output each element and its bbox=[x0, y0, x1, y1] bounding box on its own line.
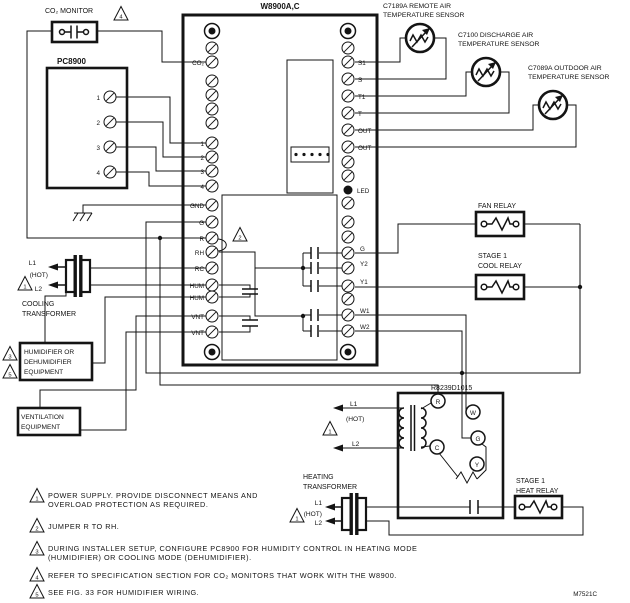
arrow-left-icon bbox=[333, 405, 343, 412]
arrow-left-icon bbox=[48, 264, 58, 271]
sensor-outdoor-label-1: C7089A OUTDOOR AIR bbox=[528, 65, 602, 72]
warning-number: 1 bbox=[328, 430, 331, 436]
pc8900-outline bbox=[47, 68, 127, 188]
note-4: 4 REFER TO SPECIFICATION SECTION FOR CO₂… bbox=[30, 568, 397, 582]
led-label: LED bbox=[357, 188, 370, 195]
warning-number: 3 bbox=[35, 550, 38, 556]
terminal-label-t: T bbox=[358, 111, 362, 118]
pc8900-title: PC8900 bbox=[57, 57, 86, 66]
humidifier-label-1: HUMIDIFIER OR bbox=[24, 349, 74, 356]
r8239-terminal-y: Y bbox=[475, 462, 480, 469]
cooling-transformer: L1 (HOT) L2 COOLING TRANSFORMER bbox=[22, 255, 90, 318]
sensor-remote-label-2: TEMPERATURE SENSOR bbox=[383, 12, 465, 19]
heating-transformer-label-2: TRANSFORMER bbox=[303, 484, 357, 491]
transformer-icon bbox=[342, 493, 366, 535]
note-5: 5 SEE FIG. 33 FOR HUMIDIFIER WIRING. bbox=[30, 585, 199, 599]
terminal-label-2: 2 bbox=[200, 155, 204, 162]
w8900-contacts-icon bbox=[242, 247, 318, 337]
r8239-transformer-icon bbox=[399, 405, 426, 451]
sensor-discharge-label-2: TEMPERATURE SENSOR bbox=[458, 41, 540, 48]
terminal-label-1: 1 bbox=[200, 141, 204, 148]
r8239-terminal-w: W bbox=[470, 410, 476, 417]
r8239-contact-icon bbox=[470, 500, 478, 514]
note-1: 1 POWER SUPPLY. PROVIDE DISCONNECT MEANS… bbox=[30, 489, 258, 510]
transformer-icon bbox=[66, 255, 90, 297]
co2-monitor: CO₂ MONITOR bbox=[45, 8, 97, 42]
heating-transformer-label-1: HEATING bbox=[303, 474, 334, 481]
terminal-label-t1: T1 bbox=[358, 94, 366, 101]
note-2: 2 JUMPER R TO RH. bbox=[30, 519, 119, 533]
terminal-label-y1: Y1 bbox=[360, 279, 368, 286]
r8239-label: R8239D1015 bbox=[431, 385, 472, 392]
pc8900-terminal-4: 4 bbox=[96, 170, 100, 177]
sensor-remote-label-1: C7189A REMOTE AIR bbox=[383, 3, 451, 10]
arrow-left-icon bbox=[325, 504, 335, 511]
warning-number: 5 bbox=[8, 373, 11, 379]
terminal-label-w2: W2 bbox=[360, 324, 370, 331]
heat-relay-label-2: HEAT RELAY bbox=[516, 488, 559, 495]
warning-number: 5 bbox=[35, 593, 38, 599]
l2-label: L2 bbox=[35, 286, 43, 293]
humidifier-label-2: DEHUMIDIFIER bbox=[24, 359, 72, 366]
l1-label: L1 bbox=[315, 500, 323, 507]
contact-icon bbox=[60, 26, 89, 39]
note-3-line-2: (HUMIDIFIER) OR COOLING MODE (DEHUMIDIFI… bbox=[48, 553, 252, 562]
arrow-left-icon bbox=[325, 518, 335, 525]
warning-triangle-humidifier-fig: 5 bbox=[3, 365, 17, 379]
co2-monitor-label: CO₂ MONITOR bbox=[45, 8, 93, 15]
thermistor-icon bbox=[406, 24, 434, 52]
fan-relay-label: FAN RELAY bbox=[478, 203, 516, 210]
warning-number: 1 bbox=[35, 497, 38, 503]
terminal-label-4: 4 bbox=[200, 184, 204, 191]
cooling-transformer-label-2: TRANSFORMER bbox=[22, 311, 76, 318]
warning-triangle-humidity-mode: 3 bbox=[3, 347, 17, 361]
r8239-terminals: R C W G Y bbox=[430, 394, 485, 471]
terminal-label-vnt1: VNT bbox=[191, 314, 204, 321]
arrow-left-icon bbox=[333, 445, 343, 452]
cool-relay-label-2: COOL RELAY bbox=[478, 263, 522, 270]
hot-label: (HOT) bbox=[30, 272, 48, 279]
w8900-subpanel bbox=[222, 195, 337, 360]
warning-number: 1 bbox=[295, 517, 298, 523]
l2-label: L2 bbox=[315, 520, 323, 527]
relay-coil-icon bbox=[519, 501, 557, 513]
warning-number: 2 bbox=[238, 236, 241, 242]
sensor-outdoor-air: C7089A OUTDOOR AIR TEMPERATURE SENSOR bbox=[528, 65, 610, 119]
warning-number: 3 bbox=[8, 355, 11, 361]
terminal-label-rh: RH bbox=[195, 250, 205, 257]
warning-number: 1 bbox=[23, 285, 26, 291]
w8900-internal-wiring bbox=[218, 239, 342, 332]
ventilation-label-2: EQUIPMENT bbox=[21, 424, 60, 431]
r8239-terminal-c: C bbox=[435, 445, 440, 452]
terminal-label-r: R bbox=[199, 236, 204, 243]
warning-number: 2 bbox=[35, 527, 38, 533]
w8900-left-screw-terminals bbox=[206, 42, 218, 338]
junction-dots bbox=[158, 236, 582, 375]
warning-triangle-r8239-power: 1 bbox=[323, 422, 337, 436]
cooling-transformer-label-1: COOLING bbox=[22, 301, 54, 308]
warning-triangle-jumper: 2 bbox=[233, 228, 247, 242]
cool-relay-label-1: STAGE 1 bbox=[478, 253, 507, 260]
ventilation-label-1: VENTILATION bbox=[21, 414, 64, 421]
note-5-line-1: SEE FIG. 33 FOR HUMIDIFIER WIRING. bbox=[48, 588, 199, 597]
sensor-remote-air: C7189A REMOTE AIR TEMPERATURE SENSOR bbox=[383, 3, 465, 52]
r8239-terminal-r: R bbox=[436, 399, 441, 406]
terminal-label-g-left: G bbox=[199, 220, 204, 227]
l1-label: L1 bbox=[29, 260, 37, 267]
w8900-module bbox=[287, 60, 333, 193]
cool-relay-box bbox=[476, 275, 524, 299]
note-1-line-2: OVERLOAD PROTECTION AS REQUIRED. bbox=[48, 500, 208, 509]
fan-relay: FAN RELAY bbox=[476, 203, 524, 236]
wires bbox=[27, 31, 583, 535]
terminal-label-w1: W1 bbox=[360, 308, 370, 315]
warning-triangle-co2: 4 bbox=[114, 7, 128, 21]
terminal-label-hum1: HUM bbox=[190, 283, 204, 290]
r8239-terminal-g: G bbox=[476, 436, 481, 443]
thermistor-icon bbox=[472, 58, 500, 86]
fan-relay-box bbox=[476, 212, 524, 236]
wiring-diagram-svg: W8900A,C bbox=[0, 0, 630, 603]
terminal-label-co2: CO₂ bbox=[192, 60, 204, 67]
humidifier-label-3: EQUIPMENT bbox=[24, 369, 63, 376]
led-icon bbox=[344, 186, 353, 195]
terminal-label-vnt2: VNT bbox=[191, 330, 204, 337]
terminal-label-rc: RC bbox=[195, 266, 205, 273]
terminal-label-out1: OUT bbox=[358, 128, 371, 135]
l1-label: L1 bbox=[350, 401, 358, 408]
ventilation-equipment: VENTILATION EQUIPMENT bbox=[18, 408, 80, 435]
relay-coil-icon bbox=[481, 281, 519, 293]
terminal-label-hum2: HUM bbox=[190, 295, 204, 302]
heat-relay: STAGE 1 HEAT RELAY bbox=[515, 478, 562, 518]
terminal-label-s: S bbox=[358, 77, 362, 84]
wiring-diagram: W8900A,C bbox=[0, 0, 630, 603]
l2-label: L2 bbox=[352, 441, 360, 448]
note-1-line-1: POWER SUPPLY. PROVIDE DISCONNECT MEANS A… bbox=[48, 491, 258, 500]
hot-label: (HOT) bbox=[304, 511, 322, 518]
pc8900-terminal-1: 1 bbox=[96, 95, 100, 102]
terminal-label-out2: OUT bbox=[358, 145, 371, 152]
heat-relay-box bbox=[515, 496, 562, 518]
terminal-label-s1: S1 bbox=[358, 60, 366, 67]
pc8900-terminal-2: 2 bbox=[96, 120, 100, 127]
terminal-label-gnd: GND bbox=[190, 203, 204, 210]
thermistor-icon bbox=[539, 91, 567, 119]
sensor-discharge-label-1: C7100 DISCHARGE AIR bbox=[458, 32, 533, 39]
connector-pins-icon bbox=[294, 153, 329, 156]
arrow-left-icon bbox=[48, 282, 58, 289]
earth-ground-icon bbox=[73, 213, 92, 221]
cool-relay: STAGE 1 COOL RELAY bbox=[476, 253, 524, 299]
note-3: 3 DURING INSTALLER SETUP, CONFIGURE PC89… bbox=[30, 542, 417, 563]
heating-transformer: HEATING TRANSFORMER L1 (HOT) L2 bbox=[303, 474, 366, 535]
pc8900-panel: PC8900 1 2 3 4 bbox=[47, 57, 127, 188]
note-3-line-1: DURING INSTALLER SETUP, CONFIGURE PC8900… bbox=[48, 544, 417, 553]
terminal-label-g-right: G bbox=[360, 246, 365, 253]
w8900-title: W8900A,C bbox=[260, 2, 299, 11]
note-4-line-1: REFER TO SPECIFICATION SECTION FOR CO₂ M… bbox=[48, 571, 397, 580]
humidifier-equipment: HUMIDIFIER OR DEHUMIDIFIER EQUIPMENT bbox=[20, 343, 92, 380]
hot-label: (HOT) bbox=[346, 416, 364, 423]
note-2-line-1: JUMPER R TO RH. bbox=[48, 522, 119, 531]
heat-relay-label-1: STAGE 1 bbox=[516, 478, 545, 485]
pc8900-terminal-3: 3 bbox=[96, 145, 100, 152]
terminal-label-3: 3 bbox=[200, 169, 204, 176]
warning-triangle-heating-power: 1 bbox=[290, 509, 304, 523]
sensor-outdoor-label-2: TEMPERATURE SENSOR bbox=[528, 74, 610, 81]
relay-coil-icon bbox=[481, 218, 519, 230]
terminal-label-y2: Y2 bbox=[360, 261, 368, 268]
drawing-number: M7521C bbox=[573, 591, 597, 598]
